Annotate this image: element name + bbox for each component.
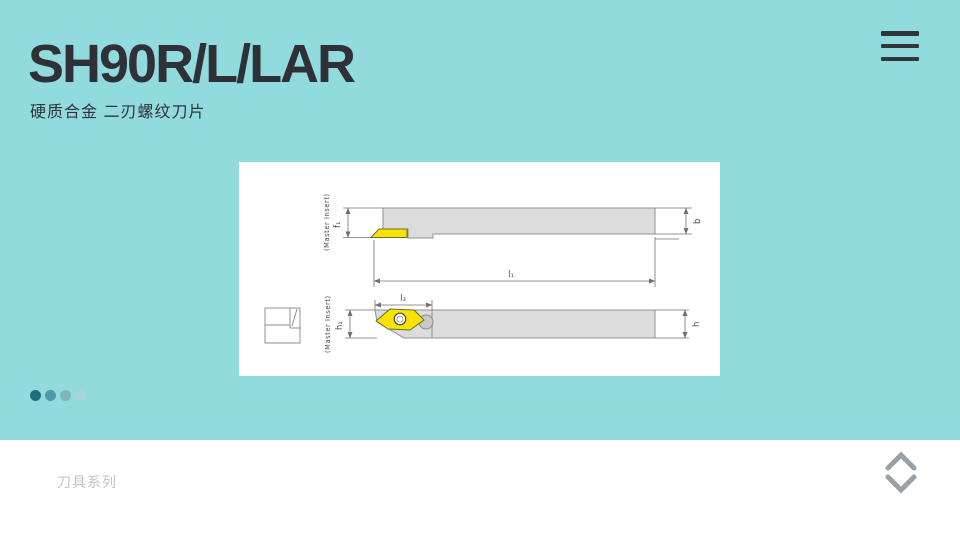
dimension-h: h xyxy=(655,310,702,338)
side-view: l₃ h₁ (Master Insert) h xyxy=(324,294,702,353)
page-title: SH90R/L/LAR xyxy=(28,36,354,93)
dimension-b: b xyxy=(655,208,703,239)
dimension-l3: l₃ xyxy=(375,294,432,310)
svg-text:l₁: l₁ xyxy=(508,270,514,280)
end-view xyxy=(265,308,300,343)
svg-text:h: h xyxy=(692,322,702,327)
dimension-h1: h₁ (Master Insert) xyxy=(324,295,377,353)
svg-text:h₁: h₁ xyxy=(335,321,345,330)
top-view-insert xyxy=(371,229,407,238)
footer-section: 刀具系列 xyxy=(0,440,960,540)
pagination-dot-3[interactable] xyxy=(60,390,71,401)
svg-text:l₃: l₃ xyxy=(400,294,406,304)
series-label: 刀具系列 xyxy=(57,472,117,492)
top-view-shank xyxy=(383,208,655,238)
svg-text:b: b xyxy=(693,219,703,224)
product-page: SH90R/L/LAR 硬质合金 二刃螺纹刀片 xyxy=(0,0,960,540)
tool-holder-drawing: f₁ (Master Insert) b l₁ xyxy=(239,162,720,376)
pagination-dot-2[interactable] xyxy=(45,390,56,401)
svg-text:f₁: f₁ xyxy=(333,222,343,228)
diagram-panel: f₁ (Master Insert) b l₁ xyxy=(239,162,720,376)
dimension-l1: l₁ xyxy=(374,237,655,287)
top-view: f₁ (Master Insert) b l₁ xyxy=(323,193,703,287)
pagination-dots xyxy=(30,390,86,401)
pagination-dot-4[interactable] xyxy=(75,390,86,401)
pager-controls xyxy=(883,448,919,500)
hero-section: SH90R/L/LAR 硬质合金 二刃螺纹刀片 xyxy=(0,0,960,440)
hamburger-menu-icon[interactable] xyxy=(881,31,919,61)
master-insert-note-side: (Master Insert) xyxy=(324,295,332,353)
page-subtitle: 硬质合金 二刃螺纹刀片 xyxy=(30,98,205,122)
insert-screw-hole-inner xyxy=(397,316,403,322)
menu-bar xyxy=(881,31,919,36)
menu-bar xyxy=(881,44,919,49)
chevron-up-icon[interactable] xyxy=(883,448,919,472)
master-insert-note-top: (Master Insert) xyxy=(323,193,331,251)
chevron-down-icon[interactable] xyxy=(883,473,919,497)
menu-bar xyxy=(881,57,919,62)
pagination-dot-1[interactable] xyxy=(30,390,41,401)
